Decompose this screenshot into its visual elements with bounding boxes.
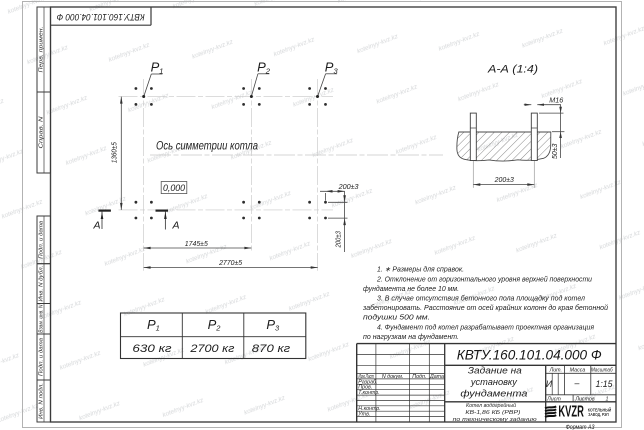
svg-text:Масштаб: Масштаб [591, 367, 613, 373]
svg-text:870 кг: 870 кг [252, 343, 291, 355]
svg-text:630 кг: 630 кг [132, 343, 172, 355]
svg-text:Лист: Лист [546, 396, 561, 402]
svg-text:1. ∗ Размеры для справок.: 1. ∗ Размеры для справок. [377, 265, 464, 274]
svg-text:3. В случае отсутствия бетонно: 3. В случае отсутствия бетонного пола пл… [377, 294, 585, 303]
svg-text:И: И [546, 379, 553, 389]
svg-text:по техническому заданию: по техническому заданию [453, 417, 538, 423]
svg-text:установку: установку [470, 377, 518, 387]
svg-text:2. Отклонение от горизонтально: 2. Отклонение от горизонтального уровня … [376, 274, 592, 283]
svg-text:Масса: Масса [570, 367, 586, 373]
svg-text:по нагрузкам на фундамент.: по нагрузкам на фундамент. [363, 332, 459, 341]
svg-text:Инв. N дубл.: Инв. N дубл. [38, 266, 44, 302]
svg-text:Утв.: Утв. [358, 412, 370, 418]
svg-text:Справ. N: Справ. N [38, 115, 44, 148]
svg-text:фундамента не более 10 мм.: фундамента не более 10 мм. [363, 284, 459, 293]
svg-text:А-А (1:4): А-А (1:4) [487, 64, 538, 76]
svg-text:Лит.: Лит. [549, 367, 562, 373]
svg-text:Т.контр.: Т.контр. [358, 390, 379, 396]
svg-text:забетонировать. Расстояние от: забетонировать. Расстояние от осей крайн… [362, 303, 608, 312]
svg-text:М16: М16 [549, 95, 563, 104]
svg-text:А: А [92, 220, 100, 232]
svg-text:1360±5: 1360±5 [112, 142, 119, 163]
svg-text:2770±5: 2770±5 [218, 258, 243, 267]
svg-text:А: А [171, 220, 179, 232]
svg-text:КВТУ.160.101.04.000 Ф: КВТУ.160.101.04.000 Ф [457, 348, 602, 363]
svg-text:Подп. и дата: Подп. и дата [38, 338, 44, 376]
svg-text:Листов: Листов [574, 396, 595, 402]
svg-text:–: – [574, 378, 580, 388]
svg-text:Перв. примен.: Перв. примен. [38, 27, 44, 73]
svg-text:50±3: 50±3 [550, 144, 559, 160]
svg-text:Инв. N подл.: Инв. N подл. [38, 383, 44, 419]
svg-text:2700 кг: 2700 кг [189, 343, 235, 355]
svg-text:200±3: 200±3 [336, 231, 343, 248]
svg-text:1:15: 1:15 [595, 379, 612, 389]
svg-text:Задание на: Задание на [468, 366, 522, 376]
svg-text:KVZR: KVZR [558, 404, 584, 421]
svg-text:Котел водогрейный: Котел водогрейный [466, 402, 517, 409]
svg-text:Формат А3: Формат А3 [566, 424, 595, 430]
svg-text:подушки 500 мм.: подушки 500 мм. [363, 313, 430, 322]
svg-text:Ось симметрии котла: Ось симметрии котла [156, 138, 258, 152]
svg-text:КВТУ.160.101.04.000 Ф: КВТУ.160.101.04.000 Ф [56, 12, 145, 22]
svg-text:1: 1 [606, 396, 609, 402]
svg-text:N докум.: N докум. [382, 374, 403, 380]
svg-text:200±3: 200±3 [494, 175, 514, 184]
svg-text:Взам. инв. N: Взам. инв. N [38, 304, 44, 333]
svg-text:Подп.: Подп. [412, 374, 426, 380]
svg-text:1745±5: 1745±5 [185, 239, 209, 248]
svg-text:200±3: 200±3 [338, 182, 359, 191]
svg-text:фундамента: фундамента [460, 389, 527, 399]
svg-text:Подп. и дата: Подп. и дата [38, 221, 44, 259]
svg-text:4. Фундамент под котел разраба: 4. Фундамент под котел разрабатывает про… [377, 322, 594, 331]
svg-text:Дата: Дата [429, 374, 444, 380]
svg-text:0,000: 0,000 [163, 183, 185, 193]
svg-text:КВ-1,86 КБ (РВР): КВ-1,86 КБ (РВР) [465, 410, 520, 416]
svg-text:ЗАВОД, РЭП: ЗАВОД, РЭП [588, 412, 609, 417]
